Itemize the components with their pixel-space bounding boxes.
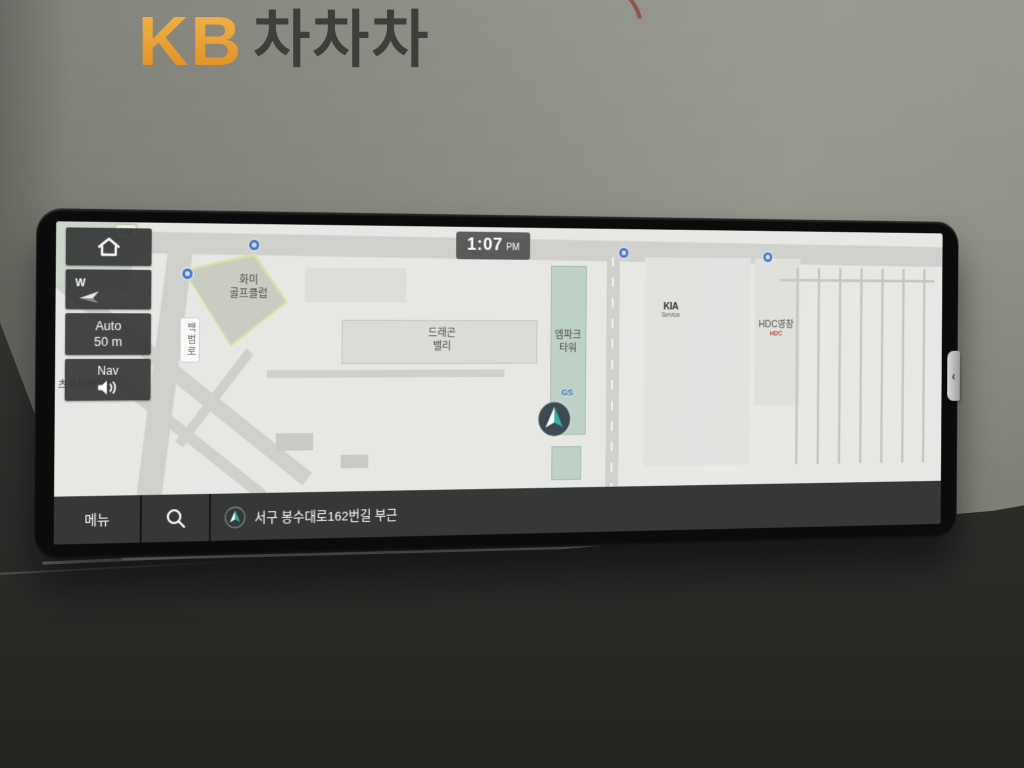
map-canvas[interactable]: CU 화미 골프클럽 백범로 드래곤 밸리 엠파크 타워 GS KIA Serv… [54, 221, 943, 496]
speaker-icon [97, 380, 119, 396]
label-golf-club: 화미 골프클럽 [201, 274, 296, 301]
clock-time: 1:07 [467, 235, 503, 256]
screen-bezel: CU 화미 골프클럽 백범로 드래곤 밸리 엠파크 타워 GS KIA Serv… [34, 208, 959, 560]
road-vertical-center [605, 257, 620, 497]
home-icon [96, 236, 122, 258]
label-road-baekbeom: 백범로 [180, 317, 200, 362]
compass-heading-button[interactable]: W [65, 269, 151, 309]
kb-chachacha-logo: KB 차차차 [138, 6, 430, 76]
parking-grid-lines [795, 268, 934, 464]
current-address-text: 서구 봉수대로162번길 부근 [254, 504, 397, 526]
label-dragon-valley: 드래곤 밸리 [383, 328, 500, 354]
traffic-sign-icon [619, 248, 629, 258]
menu-button[interactable]: 메뉴 [54, 495, 140, 544]
clock-display: 1:07 PM [456, 232, 530, 260]
search-button[interactable] [142, 494, 210, 543]
building-block [341, 454, 369, 468]
kia-service-text: Service [662, 312, 681, 319]
lane-dashes [610, 257, 614, 497]
brand-kb-text: KB [138, 6, 243, 76]
kia-brand-text: KIA [662, 302, 681, 312]
home-button[interactable] [66, 227, 152, 266]
search-icon [165, 507, 186, 529]
nav-volume-button[interactable]: Nav [65, 359, 151, 401]
traffic-sign-icon [182, 268, 193, 279]
map-scale-button[interactable]: Auto 50 m [65, 313, 151, 355]
gs-station-icon: GS [562, 388, 573, 397]
building-block [305, 267, 406, 302]
road-horizontal-mid [267, 369, 505, 378]
photo-scene: KB 차차차 [0, 0, 1024, 768]
traffic-sign-icon [249, 240, 259, 251]
navigation-display: CU 화미 골프클럽 백범로 드래곤 밸리 엠파크 타워 GS KIA Serv… [54, 221, 943, 544]
gps-position-icon [224, 505, 246, 528]
building-teal-annex [551, 446, 581, 480]
hdc-label-text: HDC영창 [759, 319, 794, 331]
traffic-sign-icon [763, 252, 772, 262]
hdc-youngchang-label: HDC영창 HDC [759, 319, 794, 338]
hdc-logo-text: HDC [759, 331, 794, 339]
clock-meridiem: PM [506, 243, 519, 254]
label-mpark-tower: 엠파크 타워 [547, 330, 589, 356]
building-block [276, 433, 313, 451]
nav-volume-label: Nav [98, 364, 119, 378]
current-position-marker [536, 399, 573, 439]
panel-handle[interactable]: ‹ [947, 351, 960, 401]
compass-arrow-icon [77, 289, 103, 305]
map-sidebar: W Auto 50 m Nav [65, 227, 152, 400]
chevron-left-icon: ‹ [952, 369, 956, 383]
kia-service-logo: KIA Service [662, 302, 681, 319]
building-kia-service [643, 257, 750, 466]
position-arrow-icon [536, 399, 573, 439]
compass-heading-label: W [75, 278, 85, 289]
infotainment-unit: CU 화미 골프클럽 백범로 드래곤 밸리 엠파크 타워 GS KIA Serv… [34, 208, 959, 560]
